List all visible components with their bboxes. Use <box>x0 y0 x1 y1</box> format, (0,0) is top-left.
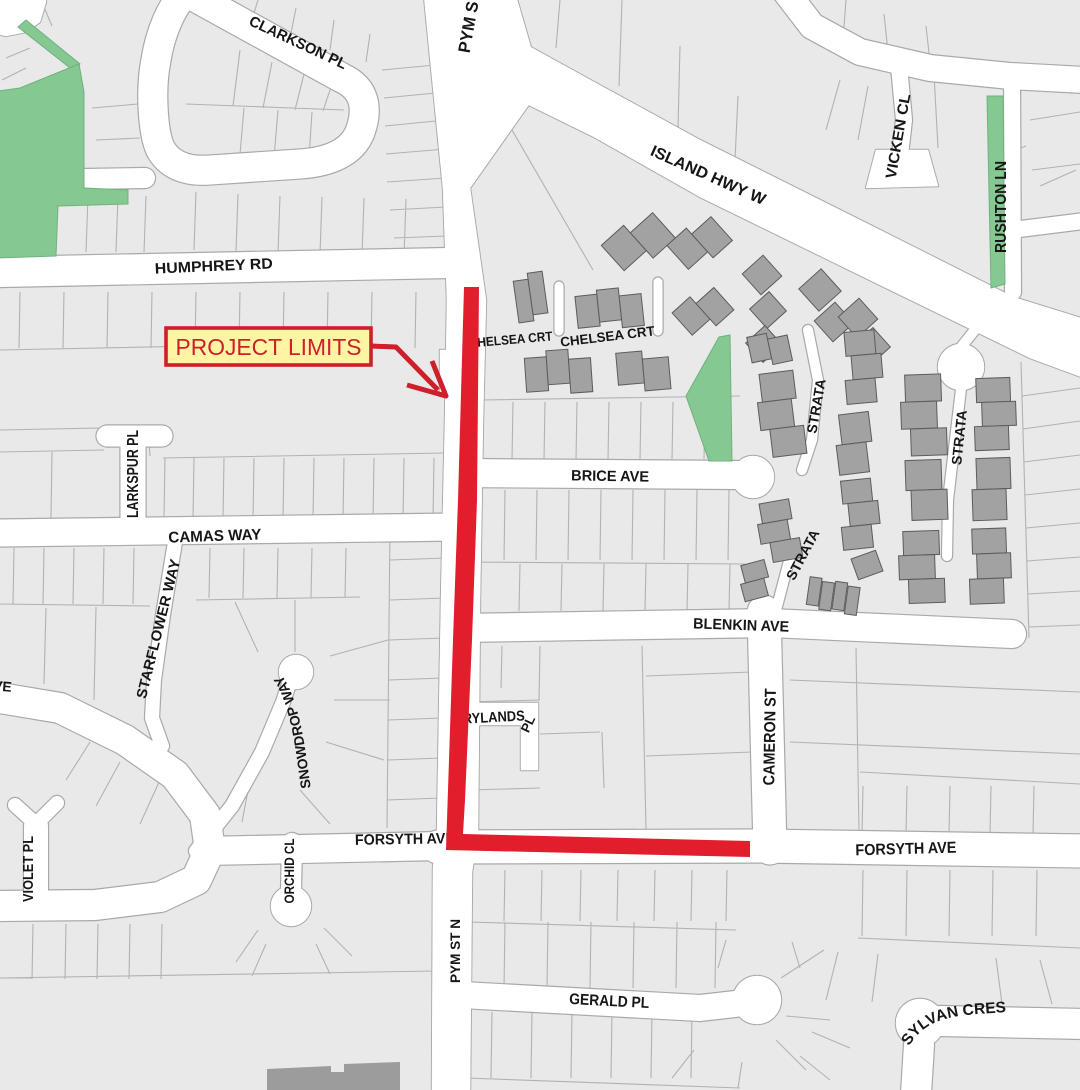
svg-text:PROJECT LIMITS: PROJECT LIMITS <box>176 334 362 360</box>
svg-text:ORCHID CL: ORCHID CL <box>282 839 297 904</box>
svg-text:RUSHTON LN: RUSHTON LN <box>993 161 1010 253</box>
svg-text:FORSYTH AVE: FORSYTH AVE <box>855 840 957 860</box>
svg-text:CAMAS WAY: CAMAS WAY <box>168 526 262 546</box>
svg-text:RYLANDS: RYLANDS <box>462 708 525 727</box>
svg-text:BLENKIN AVE: BLENKIN AVE <box>693 615 790 635</box>
svg-text:VE: VE <box>0 677 12 695</box>
svg-text:PYM ST N: PYM ST N <box>447 919 463 983</box>
svg-text:BRICE AVE: BRICE AVE <box>571 467 649 485</box>
svg-text:CAMERON ST: CAMERON ST <box>761 688 780 785</box>
svg-text:LARKSPUR PL: LARKSPUR PL <box>125 430 142 518</box>
svg-text:FORSYTH AVE: FORSYTH AVE <box>355 830 455 849</box>
svg-text:VIOLET PL: VIOLET PL <box>20 836 37 902</box>
